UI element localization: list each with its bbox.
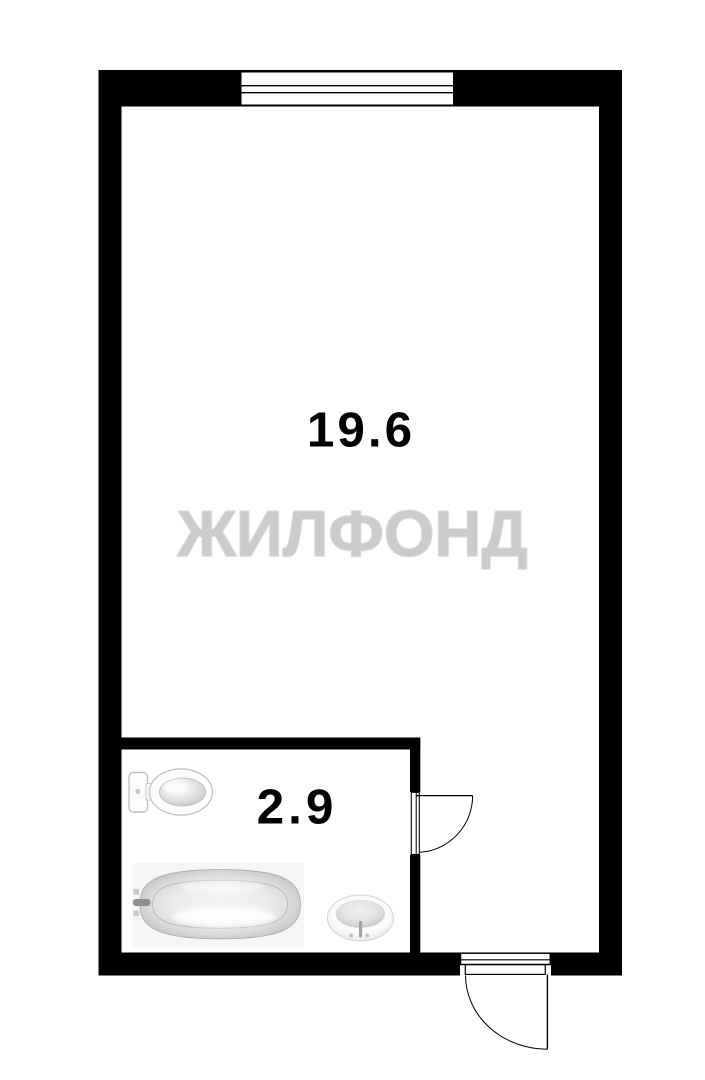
svg-text:2.9: 2.9 <box>257 779 338 834</box>
svg-text:19.6: 19.6 <box>307 402 415 457</box>
svg-text:ЖИЛФОНД: ЖИЛФОНД <box>176 497 527 570</box>
